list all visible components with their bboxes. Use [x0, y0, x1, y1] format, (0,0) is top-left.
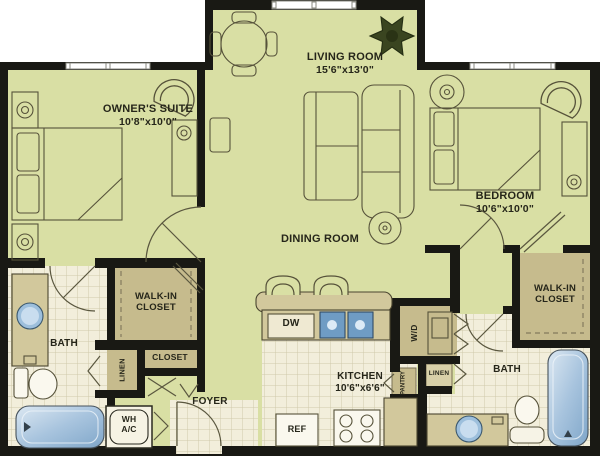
owners-suite-window	[66, 63, 150, 69]
bath-right-label: BATH	[493, 364, 521, 376]
pantry-name: PANTRY	[400, 371, 406, 395]
side-table	[369, 212, 401, 244]
living-room-window	[272, 1, 356, 9]
owners-suite-name: OWNER'S SUITE	[103, 103, 193, 115]
washer-dryer-label: W/D	[409, 324, 419, 341]
ac-name: A/C	[121, 424, 136, 434]
washer-dryer-name: W/D	[409, 324, 419, 341]
living-room-label: LIVING ROOM 15'6"x13'0"	[307, 51, 383, 77]
owners-suite-dims: 10'8"x10'0"	[119, 116, 177, 128]
living-room-name: LIVING ROOM	[307, 51, 383, 63]
entry-threshold	[176, 446, 222, 454]
bar-stool	[314, 276, 348, 295]
linen-right-name: LINEN	[429, 370, 450, 377]
kitchen-dims: 10'6"x6'6"	[335, 383, 385, 394]
owners-suite-label: OWNER'S SUITE 10'8"x10'0"	[103, 103, 193, 129]
walk-in-left-line2: CLOSET	[136, 302, 176, 313]
walk-in-left-line1: WALK-IN	[135, 291, 177, 302]
bedroom-dims: 10'6"x10'0"	[476, 203, 534, 215]
closet-label: CLOSET	[152, 352, 188, 362]
corner-counter	[384, 398, 417, 446]
toilet-base	[510, 427, 544, 443]
foyer-name: FOYER	[192, 396, 227, 407]
toilet	[515, 396, 539, 424]
walk-in-left-label: WALK-IN CLOSET	[135, 291, 177, 314]
foyer-label: FOYER	[192, 396, 227, 408]
linen-left-name: LINEN	[118, 358, 127, 382]
sectional-sofa	[362, 85, 414, 218]
bath-left-name: BATH	[50, 338, 78, 349]
bedroom-bed	[430, 108, 540, 190]
toilet	[29, 369, 57, 399]
linen-left-label: LINEN	[118, 358, 127, 382]
dining-table	[221, 21, 267, 67]
linen-right-label: LINEN	[429, 370, 450, 378]
floor-plan-graphic	[0, 0, 600, 456]
stove	[334, 410, 380, 446]
owners-bed	[12, 128, 122, 220]
toilet-tank	[14, 368, 28, 398]
bar-stool	[266, 276, 300, 295]
floorplan-page: OWNER'S SUITE 10'8"x10'0" LIVING ROOM 15…	[0, 0, 600, 456]
refrigerator-label: REF	[288, 424, 307, 435]
living-room-dims: 15'6"x13'0"	[316, 64, 374, 76]
dining-room-name: DINING ROOM	[281, 233, 359, 245]
kitchen-name: KITCHEN	[337, 371, 383, 382]
dishwasher-label: DW	[282, 318, 299, 330]
refrigerator-name: REF	[288, 424, 307, 434]
bath-right-name: BATH	[493, 364, 521, 375]
kitchen-label: KITCHEN 10'6"x6'6"	[335, 371, 385, 395]
wh-name: WH	[122, 414, 137, 424]
bedroom-name: BEDROOM	[476, 190, 535, 202]
walk-in-right-line2: CLOSET	[535, 294, 575, 305]
bedroom-label: BEDROOM 10'6"x10'0"	[476, 190, 535, 216]
dining-room-label: DINING ROOM	[281, 233, 359, 246]
bath-left-label: BATH	[50, 338, 78, 350]
dishwasher-name: DW	[282, 318, 299, 329]
pantry-label: PANTRY	[400, 371, 407, 395]
walk-in-right-label: WALK-IN CLOSET	[534, 283, 576, 306]
closet-name: CLOSET	[152, 352, 188, 362]
bedroom-window	[470, 63, 555, 69]
water-heater-ac-label: WH A/C	[121, 415, 136, 435]
walk-in-right-line1: WALK-IN	[534, 283, 576, 294]
